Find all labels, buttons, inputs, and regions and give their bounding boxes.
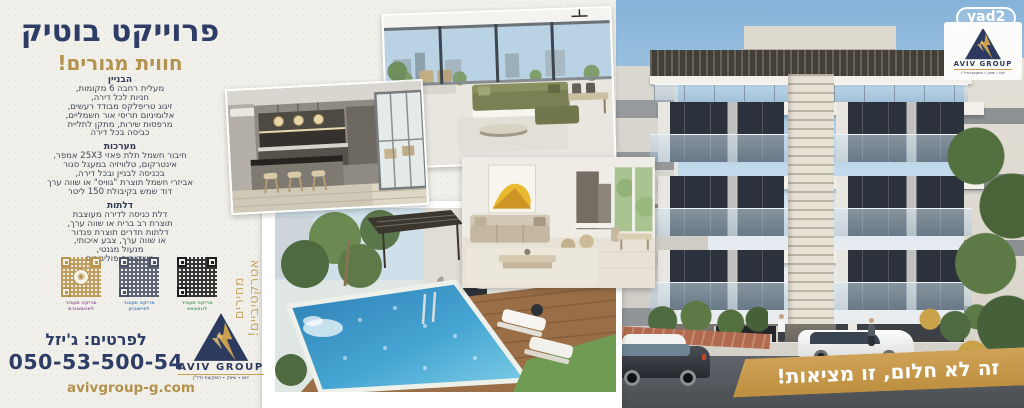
balcony-left — [658, 102, 784, 162]
contact-name: לפרטים: ג'יזל — [8, 330, 184, 349]
roof-pergola — [650, 50, 972, 76]
balcony-right — [836, 102, 964, 162]
trees — [946, 126, 1024, 376]
yad2-cloud-icon: yad2 — [956, 7, 1016, 29]
brand-tagline: יזום ∙ שיווק ∙ השקעות נדל"ן — [961, 71, 1004, 75]
spec-section-building: הבניין מעלית רחבה 6 מקומות,חניות לכל דיר… — [6, 76, 234, 138]
yad2-logo: yad2 — [956, 7, 1016, 29]
kitchen-photo — [225, 79, 429, 215]
kitchen-illustration — [227, 81, 427, 213]
dining-room-illustration — [462, 157, 655, 288]
whatsapp-qr-label: סריקה תעבירלוואצאפ — [181, 300, 212, 312]
instagram-qr-label: סריקה תעבירלאינסטגרם — [65, 300, 96, 312]
brand-tagline: יזום ∙ שיווק ∙ השקעות נדל"ן — [193, 376, 249, 381]
spec-lines-systems: חיבור חשמל תלת פאזי 25X3 אמפר,אינטרקום, … — [6, 152, 234, 197]
whatsapp-qr-code — [177, 257, 217, 297]
elevator-core — [788, 74, 834, 358]
pedestrian — [778, 320, 785, 342]
balcony-left — [658, 176, 784, 236]
brand-name: AVIV GROUP — [954, 60, 1013, 70]
dining-room-photo — [462, 157, 655, 288]
facebook-qr-code — [119, 257, 159, 297]
aviv-group-triangle-icon — [964, 27, 1002, 60]
aviv-group-logo: AVIV GROUP יזום ∙ שיווק ∙ השקעות נדל"ן — [182, 312, 260, 381]
balcony-right — [836, 176, 964, 236]
qr-item-instagram: ◉ סריקה תעבירלאינסטגרם — [56, 257, 106, 312]
facebook-qr-label: סריקה תעבורלפייסבוק — [123, 300, 154, 312]
penthouse-box — [744, 26, 896, 52]
qr-item-facebook: סריקה תעבורלפייסבוק — [114, 257, 164, 312]
project-title: פרוייקט בוטיק — [0, 14, 240, 49]
spec-lines-building: מעלית רחבה 6 מקומות,חניות לכל דירה,זיגוג… — [6, 85, 234, 138]
aviv-group-logo-small: AVIV GROUP יזום ∙ שיווק ∙ השקעות נדל"ן — [954, 27, 1013, 75]
pedestrian — [868, 324, 875, 346]
brand-name: AVIV GROUP — [178, 362, 264, 375]
aviv-group-triangle-icon — [192, 312, 250, 362]
contact-phone: 050-53-500-54 — [8, 350, 184, 374]
website-url: avivgroup-g.com — [36, 380, 226, 396]
spec-section-doors: דלתות דלת כניסה לדירה מעוצבתתוצרת רב ברי… — [6, 202, 234, 264]
flyer-canvas: פרוייקט בוטיק חווית מגורים! הבניין מעלית… — [0, 0, 1024, 408]
instagram-qr-code: ◉ — [61, 257, 101, 297]
dark-mini-car — [616, 332, 710, 388]
project-subtitle: חווית מגורים! — [0, 51, 240, 75]
qr-item-whatsapp: סריקה תעבירלוואצאפ — [172, 257, 222, 312]
instagram-camera-icon: ◉ — [73, 269, 89, 285]
spec-section-systems: מערכות חיבור חשמל תלת פאזי 25X3 אמפר,אינ… — [6, 143, 234, 196]
spec-list: הבניין מעלית רחבה 6 מקומות,חניות לכל דיר… — [6, 76, 234, 269]
aviv-logo-patch: AVIV GROUP יזום ∙ שיווק ∙ השקעות נדל"ן — [944, 22, 1022, 80]
qr-row: ◉ סריקה תעבירלאינסטגרם סריקה תעבורלפייסב… — [56, 257, 222, 312]
contact-block: לפרטים: ג'יזל 050-53-500-54 — [8, 330, 184, 374]
